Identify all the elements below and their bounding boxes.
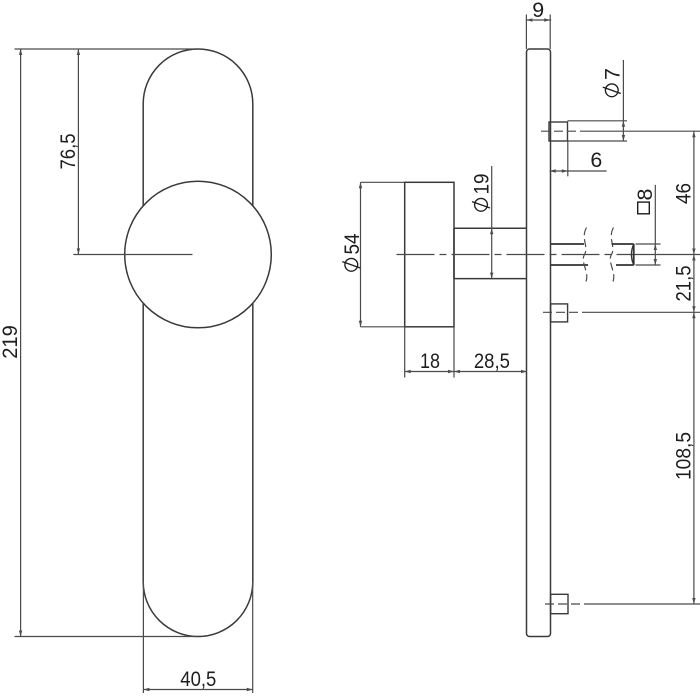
svg-text:108,5: 108,5: [671, 432, 695, 480]
svg-text:8: 8: [633, 189, 657, 201]
svg-text:21,5: 21,5: [671, 266, 695, 302]
svg-text:18: 18: [420, 349, 440, 373]
svg-text:76,5: 76,5: [56, 134, 80, 170]
svg-text:7: 7: [600, 68, 624, 80]
svg-text:54: 54: [340, 233, 364, 254]
svg-text:46: 46: [671, 183, 695, 204]
svg-text:219: 219: [0, 325, 22, 359]
svg-text:6: 6: [590, 148, 602, 172]
svg-text:28,5: 28,5: [474, 349, 510, 373]
svg-text:9: 9: [532, 0, 544, 22]
svg-text:19: 19: [470, 174, 494, 195]
svg-text:40,5: 40,5: [180, 667, 216, 691]
